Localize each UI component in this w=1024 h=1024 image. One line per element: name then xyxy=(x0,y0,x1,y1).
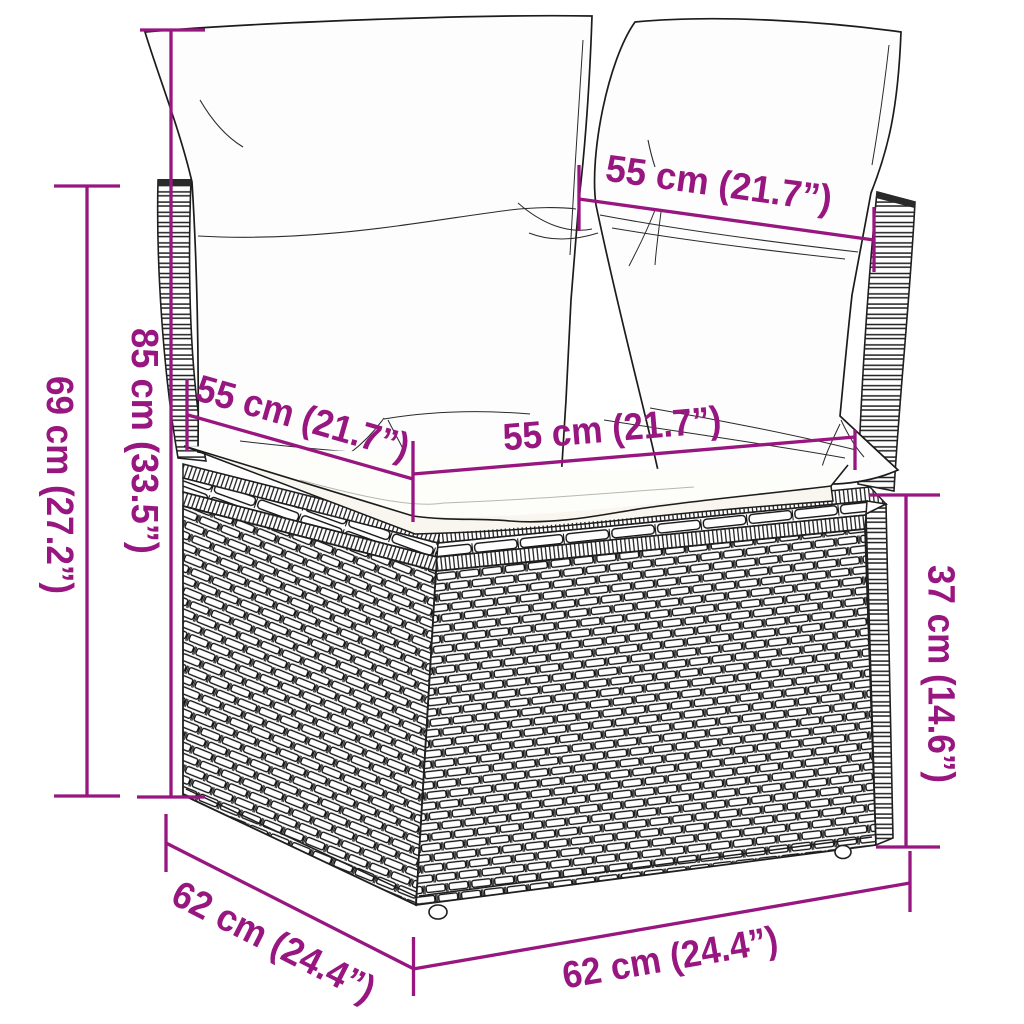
svg-text:69 cm (27.2”): 69 cm (27.2”) xyxy=(38,376,80,594)
svg-text:85 cm (33.5”): 85 cm (33.5”) xyxy=(123,328,165,554)
svg-text:37 cm (14.6”): 37 cm (14.6”) xyxy=(920,565,962,783)
